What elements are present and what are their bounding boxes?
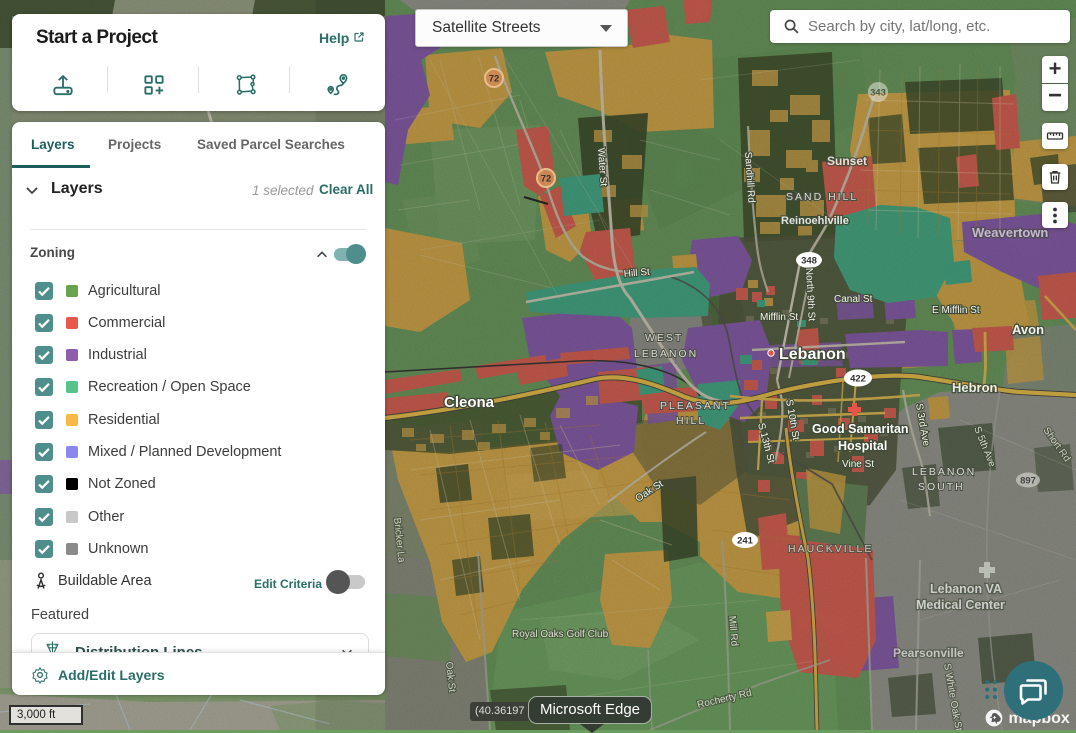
svg-text:Mifflin St: Mifflin St: [760, 312, 798, 323]
svg-text:LEBANON: LEBANON: [912, 466, 976, 478]
svg-text:Hill St: Hill St: [623, 267, 650, 280]
svg-text:Reinoehlville: Reinoehlville: [781, 215, 849, 227]
svg-text:Good Samaritan: Good Samaritan: [812, 422, 909, 436]
svg-text:SAND HILL: SAND HILL: [786, 191, 858, 203]
svg-text:897: 897: [1020, 476, 1036, 487]
svg-text:HAUCKVILLE: HAUCKVILLE: [788, 543, 873, 555]
svg-text:348: 348: [801, 256, 817, 267]
svg-text:PLEASANT: PLEASANT: [660, 400, 731, 412]
svg-text:Lebanon VA: Lebanon VA: [930, 582, 1002, 596]
svg-text:Hospital: Hospital: [838, 439, 887, 453]
svg-text:Lebanon: Lebanon: [779, 346, 846, 363]
svg-text:Medical Center: Medical Center: [916, 598, 1005, 612]
svg-text:Royal Oaks Golf Club: Royal Oaks Golf Club: [512, 629, 609, 640]
svg-text:Hebron: Hebron: [952, 380, 998, 395]
svg-text:Sunset: Sunset: [827, 154, 867, 168]
svg-text:72: 72: [489, 74, 500, 85]
svg-text:Cleona: Cleona: [444, 394, 495, 411]
svg-text:Weavertown: Weavertown: [972, 225, 1048, 240]
svg-text:SOUTH: SOUTH: [918, 481, 965, 493]
svg-text:HILL: HILL: [676, 415, 706, 427]
svg-text:422: 422: [850, 374, 866, 385]
svg-text:241: 241: [737, 536, 754, 547]
svg-text:Avon: Avon: [1012, 322, 1044, 337]
svg-text:72: 72: [541, 174, 552, 185]
svg-text:LEBANON: LEBANON: [634, 348, 698, 360]
svg-text:E Mifflin St: E Mifflin St: [932, 305, 980, 316]
svg-text:343: 343: [870, 88, 886, 99]
svg-text:Pearsonville: Pearsonville: [893, 646, 964, 660]
svg-text:Canal St: Canal St: [834, 294, 873, 305]
svg-text:Vine St: Vine St: [842, 459, 874, 470]
svg-text:WEST: WEST: [645, 332, 683, 344]
